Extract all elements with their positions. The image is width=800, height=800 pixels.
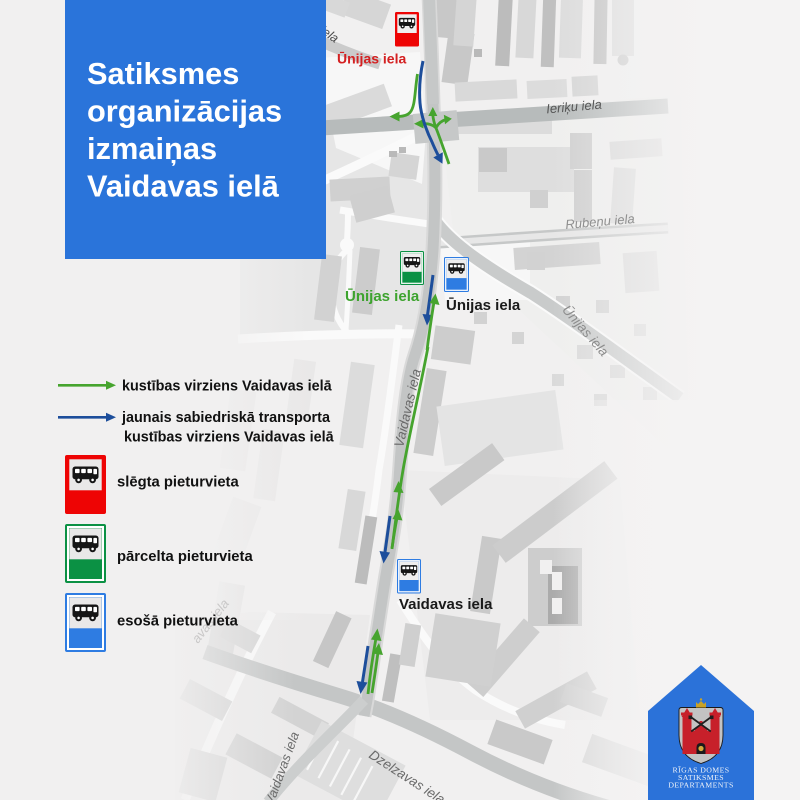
- svg-text:pārcelta pieturvieta: pārcelta pieturvieta: [117, 549, 253, 565]
- svg-text:jaunais sabiedriskā transporta: jaunais sabiedriskā transporta: [121, 410, 331, 426]
- svg-text:organizācijas: organizācijas: [87, 94, 282, 129]
- svg-text:Ūnijas iela: Ūnijas iela: [446, 297, 521, 314]
- svg-text:Ūnijas iela: Ūnijas iela: [337, 51, 406, 67]
- svg-text:slēgta pieturvieta: slēgta pieturvieta: [117, 475, 239, 491]
- svg-text:izmaiņas: izmaiņas: [87, 131, 217, 166]
- svg-text:Ūnijas iela: Ūnijas iela: [345, 288, 420, 305]
- svg-text:Vaidavas ielā: Vaidavas ielā: [87, 169, 280, 204]
- svg-text:kustības virziens Vaidavas iel: kustības virziens Vaidavas ielā: [124, 430, 335, 446]
- svg-text:kustības virziens Vaidavas iel: kustības virziens Vaidavas ielā: [122, 379, 333, 395]
- svg-text:DEPARTAMENTS: DEPARTAMENTS: [668, 781, 733, 790]
- svg-text:Satiksmes: Satiksmes: [87, 56, 239, 91]
- svg-text:esošā pieturvieta: esošā pieturvieta: [117, 614, 239, 630]
- svg-text:Vaidavas iela: Vaidavas iela: [399, 596, 493, 613]
